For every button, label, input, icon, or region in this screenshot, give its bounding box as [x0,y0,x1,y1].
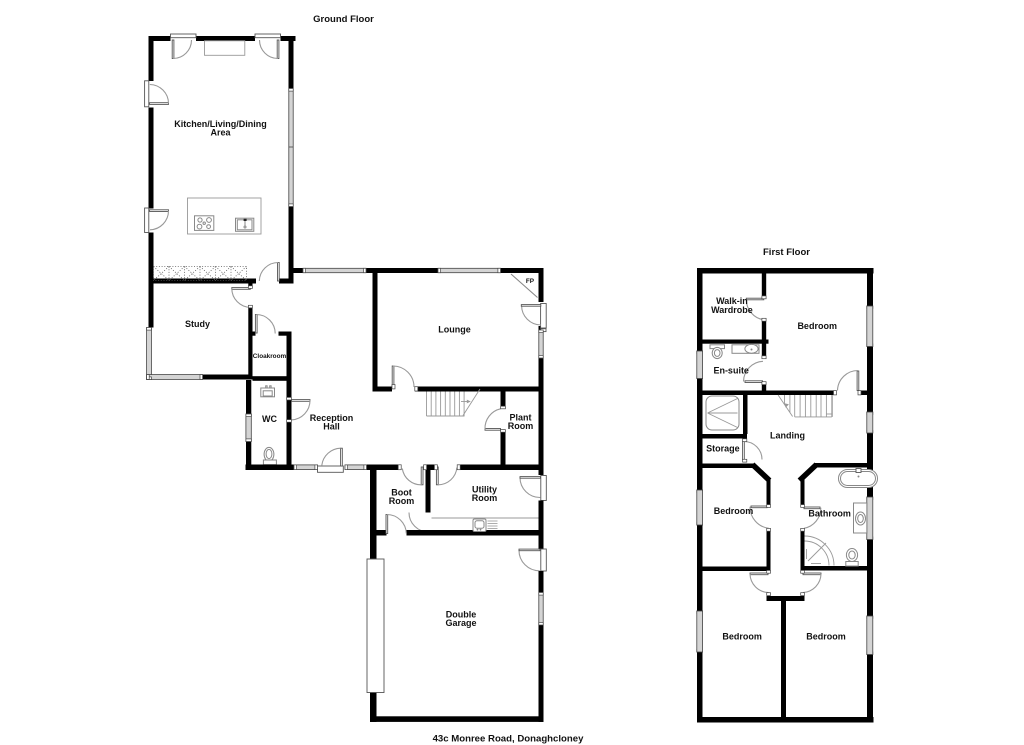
svg-text:Room: Room [508,421,534,431]
svg-text:43c Monree Road, Donaghcloney: 43c Monree Road, Donaghcloney [433,734,585,745]
svg-text:Bedroom: Bedroom [806,632,846,642]
svg-text:Study: Study [185,319,210,329]
svg-text:Cloakroom: Cloakroom [253,353,287,360]
svg-text:FP: FP [526,278,535,285]
svg-text:Bedroom: Bedroom [797,321,837,331]
svg-text:Wardrobe: Wardrobe [711,305,753,315]
svg-text:Room: Room [472,493,498,503]
svg-text:Bedroom: Bedroom [714,506,754,516]
svg-text:En-suite: En-suite [713,366,749,376]
svg-text:Storage: Storage [706,444,740,454]
svg-text:Hall: Hall [323,422,340,432]
svg-text:Landing: Landing [770,431,805,441]
svg-text:Ground Floor: Ground Floor [313,14,374,25]
svg-text:Garage: Garage [445,618,476,628]
svg-text:First Floor: First Floor [763,247,810,258]
svg-text:Area: Area [210,128,231,138]
svg-text:Room: Room [389,496,415,506]
svg-text:Bathroom: Bathroom [808,509,851,519]
svg-text:Bedroom: Bedroom [722,632,762,642]
svg-text:Lounge: Lounge [438,325,471,335]
svg-text:WC: WC [262,414,277,424]
